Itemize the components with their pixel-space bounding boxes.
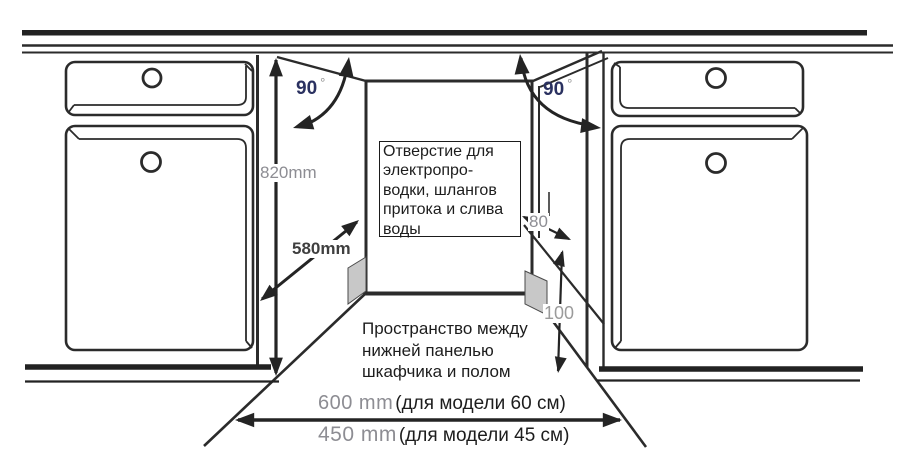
angle-label-right: 90°	[543, 77, 572, 100]
width-45-value: 450 mm	[318, 423, 397, 446]
width-45-label: 450 mm(для модели 45 см)	[318, 423, 569, 447]
niche	[204, 51, 646, 447]
opening-note-box: Отверстие для электропро- водки, шлангов…	[379, 141, 521, 237]
width-60-label: 600 mm(для модели 60 см)	[318, 392, 566, 415]
depth-label: 580mm	[291, 240, 352, 258]
hole-size-label: 80	[528, 213, 549, 231]
left-cabinet	[66, 55, 258, 366]
floor-note-line: шкафчика и полом	[362, 361, 552, 383]
countertop	[22, 30, 893, 53]
arrowhead	[553, 248, 569, 267]
arrowhead	[269, 58, 283, 76]
arrowhead	[552, 356, 567, 374]
angle-value: 90	[296, 78, 317, 99]
degree-symbol: °	[320, 75, 325, 90]
angle-label-left: 90°	[296, 76, 325, 99]
width-45-note: (для модели 45 см)	[399, 425, 570, 446]
width-60-note: (для модели 60 см)	[395, 393, 566, 414]
opening-note-line: притока и слива	[383, 200, 520, 219]
installation-diagram: 90° 90° 820mm 580mm 80 100 Отверстие для…	[0, 0, 900, 473]
opening-note-line: воды	[383, 220, 520, 239]
opening-note-line: Отверстие для	[383, 142, 520, 161]
countertop-edge	[22, 30, 867, 36]
floor-note: Пространство между нижней панелью шкафчи…	[362, 318, 552, 383]
floor-note-line: нижней панелью	[362, 340, 552, 362]
arrowhead	[580, 118, 602, 135]
arrowhead	[554, 228, 574, 246]
door-front	[612, 126, 807, 350]
height-label: 820mm	[259, 164, 318, 182]
arrowhead	[603, 413, 622, 427]
angle-value: 90	[543, 79, 564, 100]
width-60-value: 600 mm	[318, 392, 393, 414]
drawer-front	[66, 62, 253, 115]
right-cabinet	[587, 52, 807, 367]
degree-symbol: °	[567, 76, 572, 91]
opening-note-line: водки, шлангов	[383, 181, 520, 200]
arrowhead	[339, 56, 357, 78]
opening-note-line: электропро-	[383, 161, 520, 180]
floor-note-line: Пространство между	[362, 318, 552, 340]
arrowhead	[291, 115, 315, 135]
arrowhead	[513, 53, 530, 74]
